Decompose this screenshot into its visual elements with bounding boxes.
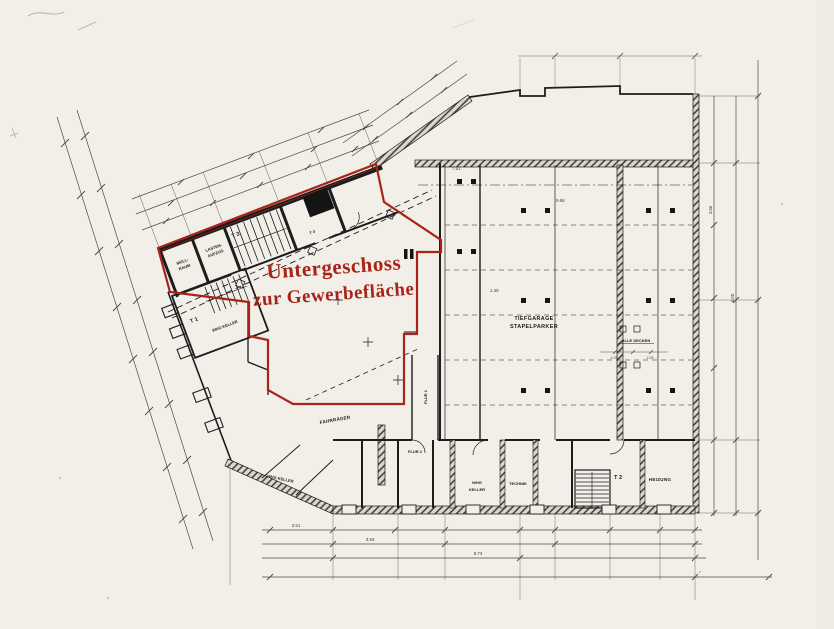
dim-label: 8.73 [474, 551, 483, 556]
door-arcs [412, 440, 624, 455]
dim-label: 3.93 [366, 537, 375, 542]
garage-label-line1: TIEFGARAGE [514, 316, 553, 322]
scan-artifacts [10, 0, 834, 629]
stair-t1-label: T 1 [189, 317, 199, 325]
door-t4-label: T 4 [309, 228, 317, 235]
plan-title-line2: zur Gewerbefläche [252, 279, 415, 311]
building-outline-top [370, 86, 693, 170]
cellar-row: FLUR 2 WHG KELLER TECHNIK T 2 HEIZUNG [333, 440, 695, 514]
floorplan-scan: 3.86 5.00 2.51 3.93 8.73 [0, 0, 834, 629]
plan-title-line1: Untergeschoss [266, 250, 402, 283]
columns [457, 179, 675, 393]
floorplan-drawing: 3.86 5.00 2.51 3.93 8.73 [0, 0, 834, 629]
height-label: 2.25 [647, 356, 654, 360]
garage-label-line2: STAPELPARKER [510, 324, 558, 330]
technik-label: TECHNIK [509, 481, 527, 486]
height-label: 2.25 [611, 356, 618, 360]
ceiling-note-text: ALLE DECKEN [622, 338, 651, 343]
light-wells [162, 303, 194, 358]
flur2-label: FLUR 2 [408, 449, 423, 454]
stair-t2 [575, 470, 610, 508]
bottom-left-wing: FAHRRÄDER WHG KELLER [225, 414, 412, 514]
garage-right-wall [693, 94, 699, 513]
garage: TIEFGARAGE STAPELPARKER ALLE DECKEN 2.25… [415, 94, 699, 513]
flur1-label: FLUR 1 [423, 389, 428, 404]
dim-label: 7.51 [452, 166, 461, 171]
dim-label: 3.86 [708, 205, 713, 214]
dim-label: 1.35 [490, 288, 499, 293]
flur1-corridor: FLUR 1 [412, 355, 438, 440]
dimension-chain-left [57, 110, 213, 549]
heizung-label: HEIZUNG [649, 477, 672, 482]
dimension-chain-right: 3.86 5.00 [698, 60, 761, 560]
parking-rows [445, 225, 692, 405]
stair-t1 [201, 273, 252, 315]
plan-title: Untergeschoss zur Gewerbefläche [250, 250, 415, 311]
dim-label: 5.00 [730, 293, 735, 302]
stair-t2-label: T 2 [614, 475, 622, 481]
whg-keller-c-line2: KELLER [469, 487, 485, 492]
dim-label: 9.68 [556, 198, 565, 203]
whg-keller-a-label: WHG KELLER [211, 319, 238, 333]
door-arc [345, 212, 363, 230]
dim-label: 2.51 [292, 523, 301, 528]
fahrraeder-label: FAHRRÄDER [319, 414, 351, 425]
stair-t3-label: T 3 [231, 231, 241, 239]
keller-t1-block: T 1 WHG KELLER [159, 269, 268, 363]
whg-keller-c-line1: WHG [472, 480, 482, 485]
